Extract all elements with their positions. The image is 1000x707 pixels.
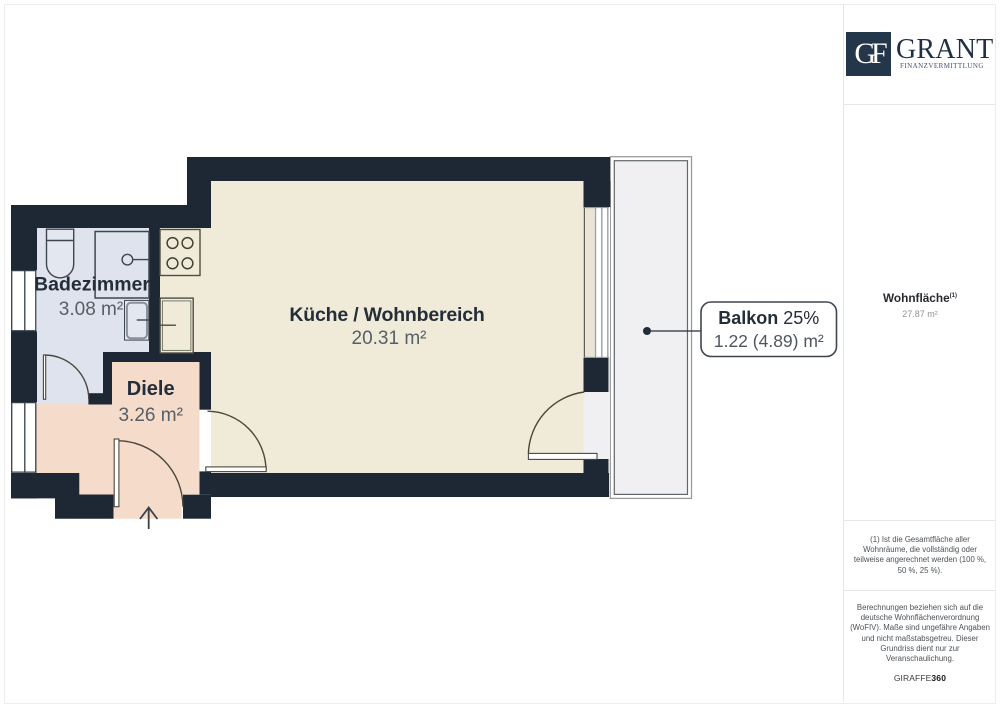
- svg-text:20.31 m²: 20.31 m²: [352, 328, 427, 349]
- svg-text:Küche / Wohnbereich: Küche / Wohnbereich: [289, 304, 484, 326]
- svg-text:Diele: Diele: [127, 378, 175, 400]
- svg-text:3.08 m²: 3.08 m²: [59, 299, 123, 320]
- svg-text:Balkon 25%: Balkon 25%: [718, 308, 819, 328]
- svg-text:3.26 m²: 3.26 m²: [118, 405, 182, 426]
- svg-text:1.22 (4.89) m²: 1.22 (4.89) m²: [714, 331, 824, 351]
- svg-text:Badezimmer: Badezimmer: [34, 274, 150, 296]
